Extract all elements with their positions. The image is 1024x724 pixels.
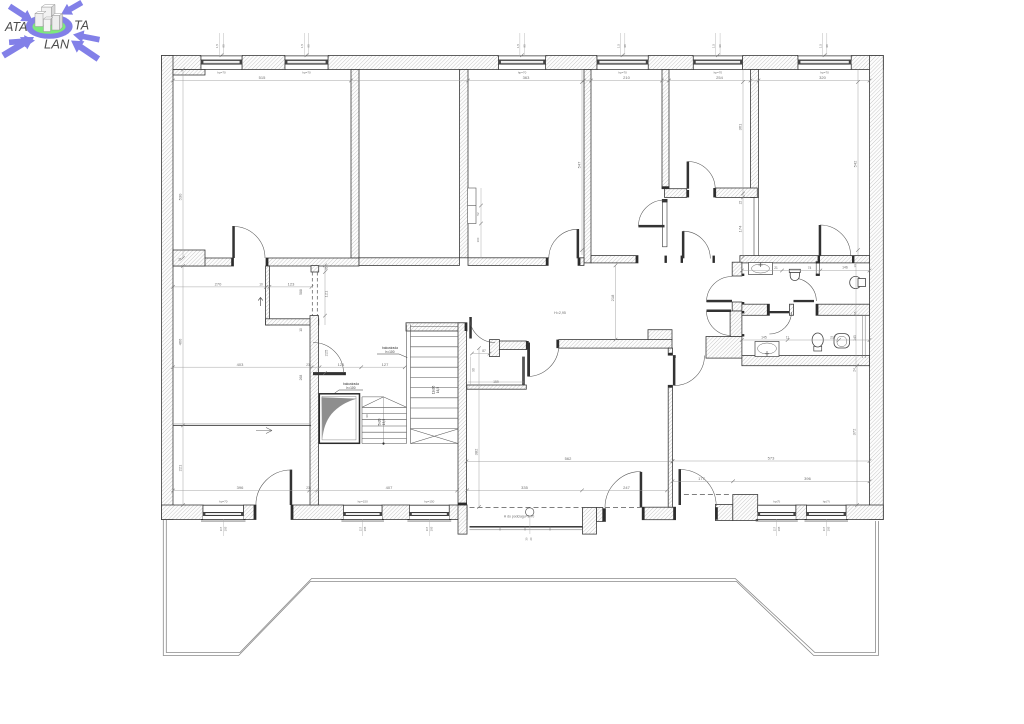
svg-text:145: 145	[761, 336, 767, 340]
svg-text:254: 254	[716, 75, 723, 80]
svg-text:174: 174	[737, 225, 742, 232]
svg-text:372: 372	[851, 428, 856, 435]
svg-text:90: 90	[222, 44, 226, 48]
svg-text:218: 218	[610, 294, 615, 301]
svg-text:562: 562	[565, 456, 572, 461]
svg-text:335: 335	[521, 485, 528, 490]
svg-text:LAN: LAN	[44, 37, 70, 52]
svg-text:26: 26	[325, 267, 329, 271]
svg-text:16,5: 16,5	[436, 387, 440, 393]
svg-text:117: 117	[425, 526, 429, 531]
svg-text:TA: TA	[74, 19, 89, 33]
svg-text:247: 247	[623, 485, 630, 490]
svg-text:217: 217	[830, 336, 836, 340]
svg-text:90: 90	[825, 44, 829, 48]
svg-text:123: 123	[288, 282, 295, 287]
svg-text:24: 24	[852, 368, 856, 372]
svg-text:547: 547	[576, 161, 581, 168]
svg-text:hp=70: hp=70	[219, 500, 228, 504]
svg-text:hp(?): hp(?)	[773, 500, 780, 504]
svg-text:195: 195	[777, 526, 781, 531]
svg-text:121: 121	[338, 362, 345, 367]
svg-text:382: 382	[473, 448, 478, 455]
svg-text:127: 127	[382, 362, 389, 367]
svg-text:h=100: h=100	[386, 350, 395, 354]
svg-text:hp=70: hp=70	[518, 71, 527, 75]
svg-text:515: 515	[259, 75, 266, 80]
svg-text:74: 74	[808, 266, 812, 270]
svg-text:5x20: 5x20	[378, 418, 382, 425]
svg-text:210: 210	[623, 75, 630, 80]
svg-text:90: 90	[307, 44, 311, 48]
svg-text:hp(?): hp(?)	[823, 500, 830, 504]
svg-text:34: 34	[178, 258, 182, 262]
svg-text:1,5: 1,5	[215, 44, 219, 49]
svg-text:588: 588	[299, 289, 303, 295]
svg-text:1,5: 1,5	[300, 44, 304, 49]
svg-text:407: 407	[386, 485, 393, 490]
svg-text:1,5: 1,5	[616, 44, 620, 49]
svg-text:h=100: h=100	[347, 386, 356, 390]
svg-text:11x26: 11x26	[432, 386, 436, 395]
svg-text:21: 21	[774, 266, 778, 270]
svg-text:225: 225	[324, 349, 329, 356]
svg-text:hp=70: hp=70	[302, 71, 311, 75]
svg-text:146: 146	[842, 266, 848, 270]
svg-text:87: 87	[482, 349, 486, 353]
svg-text:396: 396	[237, 485, 244, 490]
svg-text:H=2,95: H=2,95	[554, 311, 566, 315]
svg-text:hp=150: hp=150	[358, 500, 368, 504]
svg-text:90: 90	[623, 44, 627, 48]
svg-text:195: 195	[827, 526, 831, 531]
svg-text:90: 90	[471, 368, 475, 372]
svg-text:363: 363	[523, 75, 530, 80]
svg-text:11: 11	[786, 336, 790, 340]
svg-text:117: 117	[772, 526, 776, 531]
svg-text:117: 117	[358, 526, 362, 531]
svg-text:177: 177	[698, 476, 705, 481]
svg-text:361: 361	[737, 123, 742, 130]
svg-text:10: 10	[259, 283, 263, 287]
svg-text:100: 100	[476, 237, 480, 242]
svg-text:23: 23	[306, 363, 310, 367]
svg-text:403: 403	[237, 362, 244, 367]
svg-text:hp=70: hp=70	[714, 71, 723, 75]
svg-text:1,5: 1,5	[818, 44, 822, 49]
svg-text:530: 530	[177, 193, 182, 200]
svg-text:90: 90	[365, 414, 369, 418]
svg-text:221: 221	[177, 464, 182, 471]
svg-text:117: 117	[219, 526, 223, 531]
svg-text:15,5: 15,5	[382, 419, 386, 425]
svg-text:466: 466	[177, 338, 182, 345]
svg-text:ATA: ATA	[4, 20, 27, 34]
svg-text:1,5: 1,5	[516, 44, 520, 49]
svg-text:121: 121	[324, 290, 329, 297]
svg-text:15: 15	[853, 311, 857, 315]
svg-text:573: 573	[768, 456, 775, 461]
svg-text:268: 268	[299, 375, 303, 381]
svg-text:195: 195	[430, 526, 434, 531]
svg-text:16: 16	[853, 264, 857, 268]
svg-text:hp=150: hp=150	[424, 500, 434, 504]
svg-text:396: 396	[804, 476, 811, 481]
svg-text:52: 52	[476, 212, 480, 216]
svg-text:10: 10	[299, 328, 303, 332]
svg-text:hp=70: hp=70	[820, 71, 829, 75]
svg-text:hp=70: hp=70	[217, 71, 226, 75]
svg-text:22: 22	[738, 201, 742, 205]
svg-text:117: 117	[822, 526, 826, 531]
svg-text:23: 23	[306, 486, 310, 490]
svg-text:143: 143	[853, 335, 857, 341]
svg-text:90: 90	[718, 44, 722, 48]
svg-text:1,5: 1,5	[712, 44, 716, 49]
svg-text:195: 195	[224, 526, 228, 531]
svg-text:270: 270	[215, 282, 222, 287]
svg-text:320: 320	[819, 75, 826, 80]
svg-text:90: 90	[522, 44, 526, 48]
svg-text:195: 195	[363, 526, 367, 531]
svg-text:542: 542	[852, 160, 857, 167]
svg-text:hp=70: hp=70	[618, 71, 627, 75]
